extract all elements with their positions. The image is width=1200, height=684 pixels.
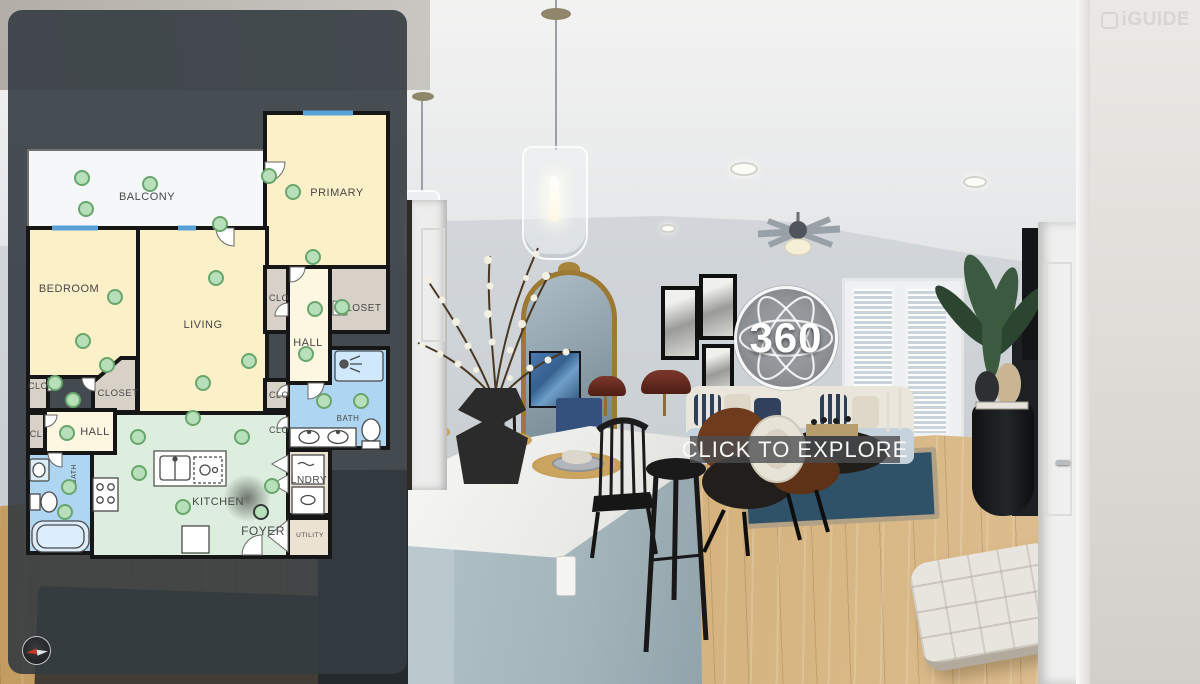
room-label: KITCHEN xyxy=(192,496,244,508)
camera-position-dot[interactable] xyxy=(262,169,276,183)
click-to-explore-button[interactable]: CLICK TO EXPLORE xyxy=(690,436,900,463)
room-label: CLOSET xyxy=(97,388,138,399)
camera-position-dot[interactable] xyxy=(317,394,331,408)
camera-position-dot[interactable] xyxy=(308,302,322,316)
room-label: FOYER xyxy=(241,524,285,538)
camera-position-dot[interactable] xyxy=(60,426,74,440)
camera-position-dot[interactable] xyxy=(75,171,89,185)
camera-position-dot[interactable] xyxy=(62,480,76,494)
camera-position-dot[interactable] xyxy=(209,271,223,285)
door-swing xyxy=(82,378,95,391)
camera-position-dot[interactable] xyxy=(58,505,72,519)
room-label: BALCONY xyxy=(119,191,175,203)
door-handle xyxy=(1056,460,1070,465)
camera-position-dot[interactable] xyxy=(76,334,90,348)
open-door xyxy=(1038,222,1080,684)
camera-position-dot[interactable] xyxy=(100,358,114,372)
room-label: CLO xyxy=(269,293,289,303)
camera-position-dot[interactable] xyxy=(306,250,320,264)
camera-position-dot[interactable] xyxy=(213,217,227,231)
camera-position-dot[interactable] xyxy=(132,466,146,480)
viewer-stage: BALCONYPRIMARYBEDROOMLIVINGCLOCLOSETHALL… xyxy=(0,0,1200,684)
camera-position-dot[interactable] xyxy=(66,393,80,407)
vase-with-branches xyxy=(398,238,588,488)
camera-position-dot[interactable] xyxy=(186,411,200,425)
camera-position-dot[interactable] xyxy=(299,347,313,361)
camera-position-dot[interactable] xyxy=(131,430,145,444)
compass[interactable] xyxy=(22,636,51,665)
room-label: CLO xyxy=(269,390,289,400)
iguide-logo-icon xyxy=(1101,12,1118,29)
room-label: UTILITY xyxy=(296,532,324,539)
camera-position-dot[interactable] xyxy=(196,376,210,390)
camera-position-dot[interactable] xyxy=(143,177,157,191)
pendant-canopy xyxy=(412,92,434,101)
room-hall-right xyxy=(288,267,330,383)
room-bedroom xyxy=(28,228,138,377)
near-wall xyxy=(1090,0,1200,684)
pendant-canopy xyxy=(541,8,571,20)
pendant-cord xyxy=(555,0,557,150)
camera-position-dot[interactable] xyxy=(79,202,93,216)
room-label: PRIMARY xyxy=(310,187,364,199)
camera-position-dot[interactable] xyxy=(286,185,300,199)
camera-position-dot[interactable] xyxy=(254,505,268,519)
room-label: CLO xyxy=(28,381,48,391)
camera-position-dot[interactable] xyxy=(108,290,122,304)
camera-position-dot[interactable] xyxy=(235,430,249,444)
badge-label: 360 xyxy=(737,289,835,387)
iguide-logo-text: iGUIDE xyxy=(1122,9,1190,31)
room-label: LNDRY xyxy=(291,475,327,486)
pendant-cord xyxy=(421,96,423,192)
room-label: BATH xyxy=(337,414,360,423)
room-label: CLO xyxy=(269,425,289,435)
camera-position-dot[interactable] xyxy=(48,376,62,390)
explore-360-badge[interactable]: 360 xyxy=(734,286,838,390)
room-label: CL xyxy=(30,429,43,439)
compass-needle-icon xyxy=(37,648,49,655)
room-label: BEDROOM xyxy=(39,283,99,295)
iguide-logo[interactable]: iGUIDE xyxy=(1101,9,1190,31)
room-closet-right xyxy=(330,267,388,332)
camera-position-dot[interactable] xyxy=(242,354,256,368)
camera-position-dot[interactable] xyxy=(176,500,190,514)
camera-position-dot[interactable] xyxy=(265,479,279,493)
camera-position-dot[interactable] xyxy=(335,300,349,314)
camera-position-dot[interactable] xyxy=(354,394,368,408)
room-label: HALL xyxy=(80,426,110,438)
floor-plan[interactable]: BALCONYPRIMARYBEDROOMLIVINGCLOCLOSETHALL… xyxy=(20,105,397,565)
pendant-bulb xyxy=(550,176,559,222)
room-label: LIVING xyxy=(183,319,222,331)
